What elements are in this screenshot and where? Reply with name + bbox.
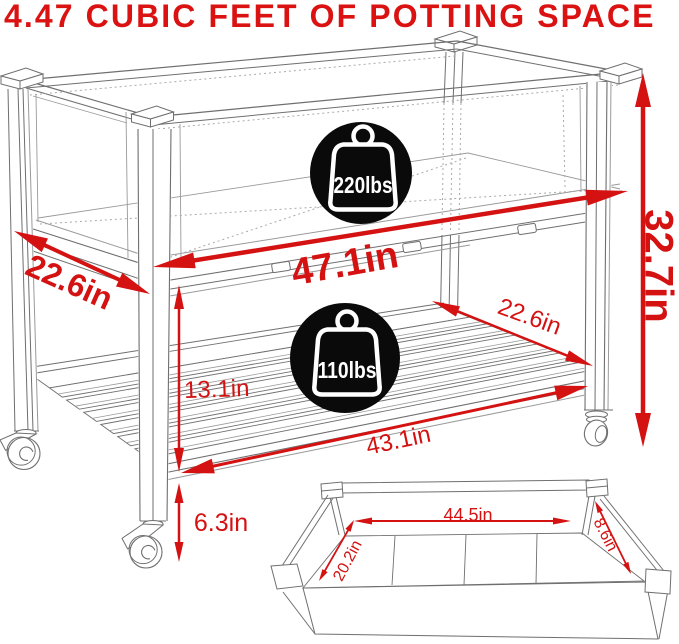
svg-text:220lbs: 220lbs — [334, 172, 393, 198]
svg-text:13.1in: 13.1in — [184, 375, 250, 404]
svg-text:6.3in: 6.3in — [194, 509, 248, 537]
svg-text:4.47 CUBIC FEET OF POTTING SPA: 4.47 CUBIC FEET OF POTTING SPACE — [4, 0, 656, 34]
svg-text:110lbs: 110lbs — [318, 357, 377, 383]
svg-text:32.7in: 32.7in — [637, 209, 679, 322]
svg-text:44.5in: 44.5in — [443, 505, 492, 525]
